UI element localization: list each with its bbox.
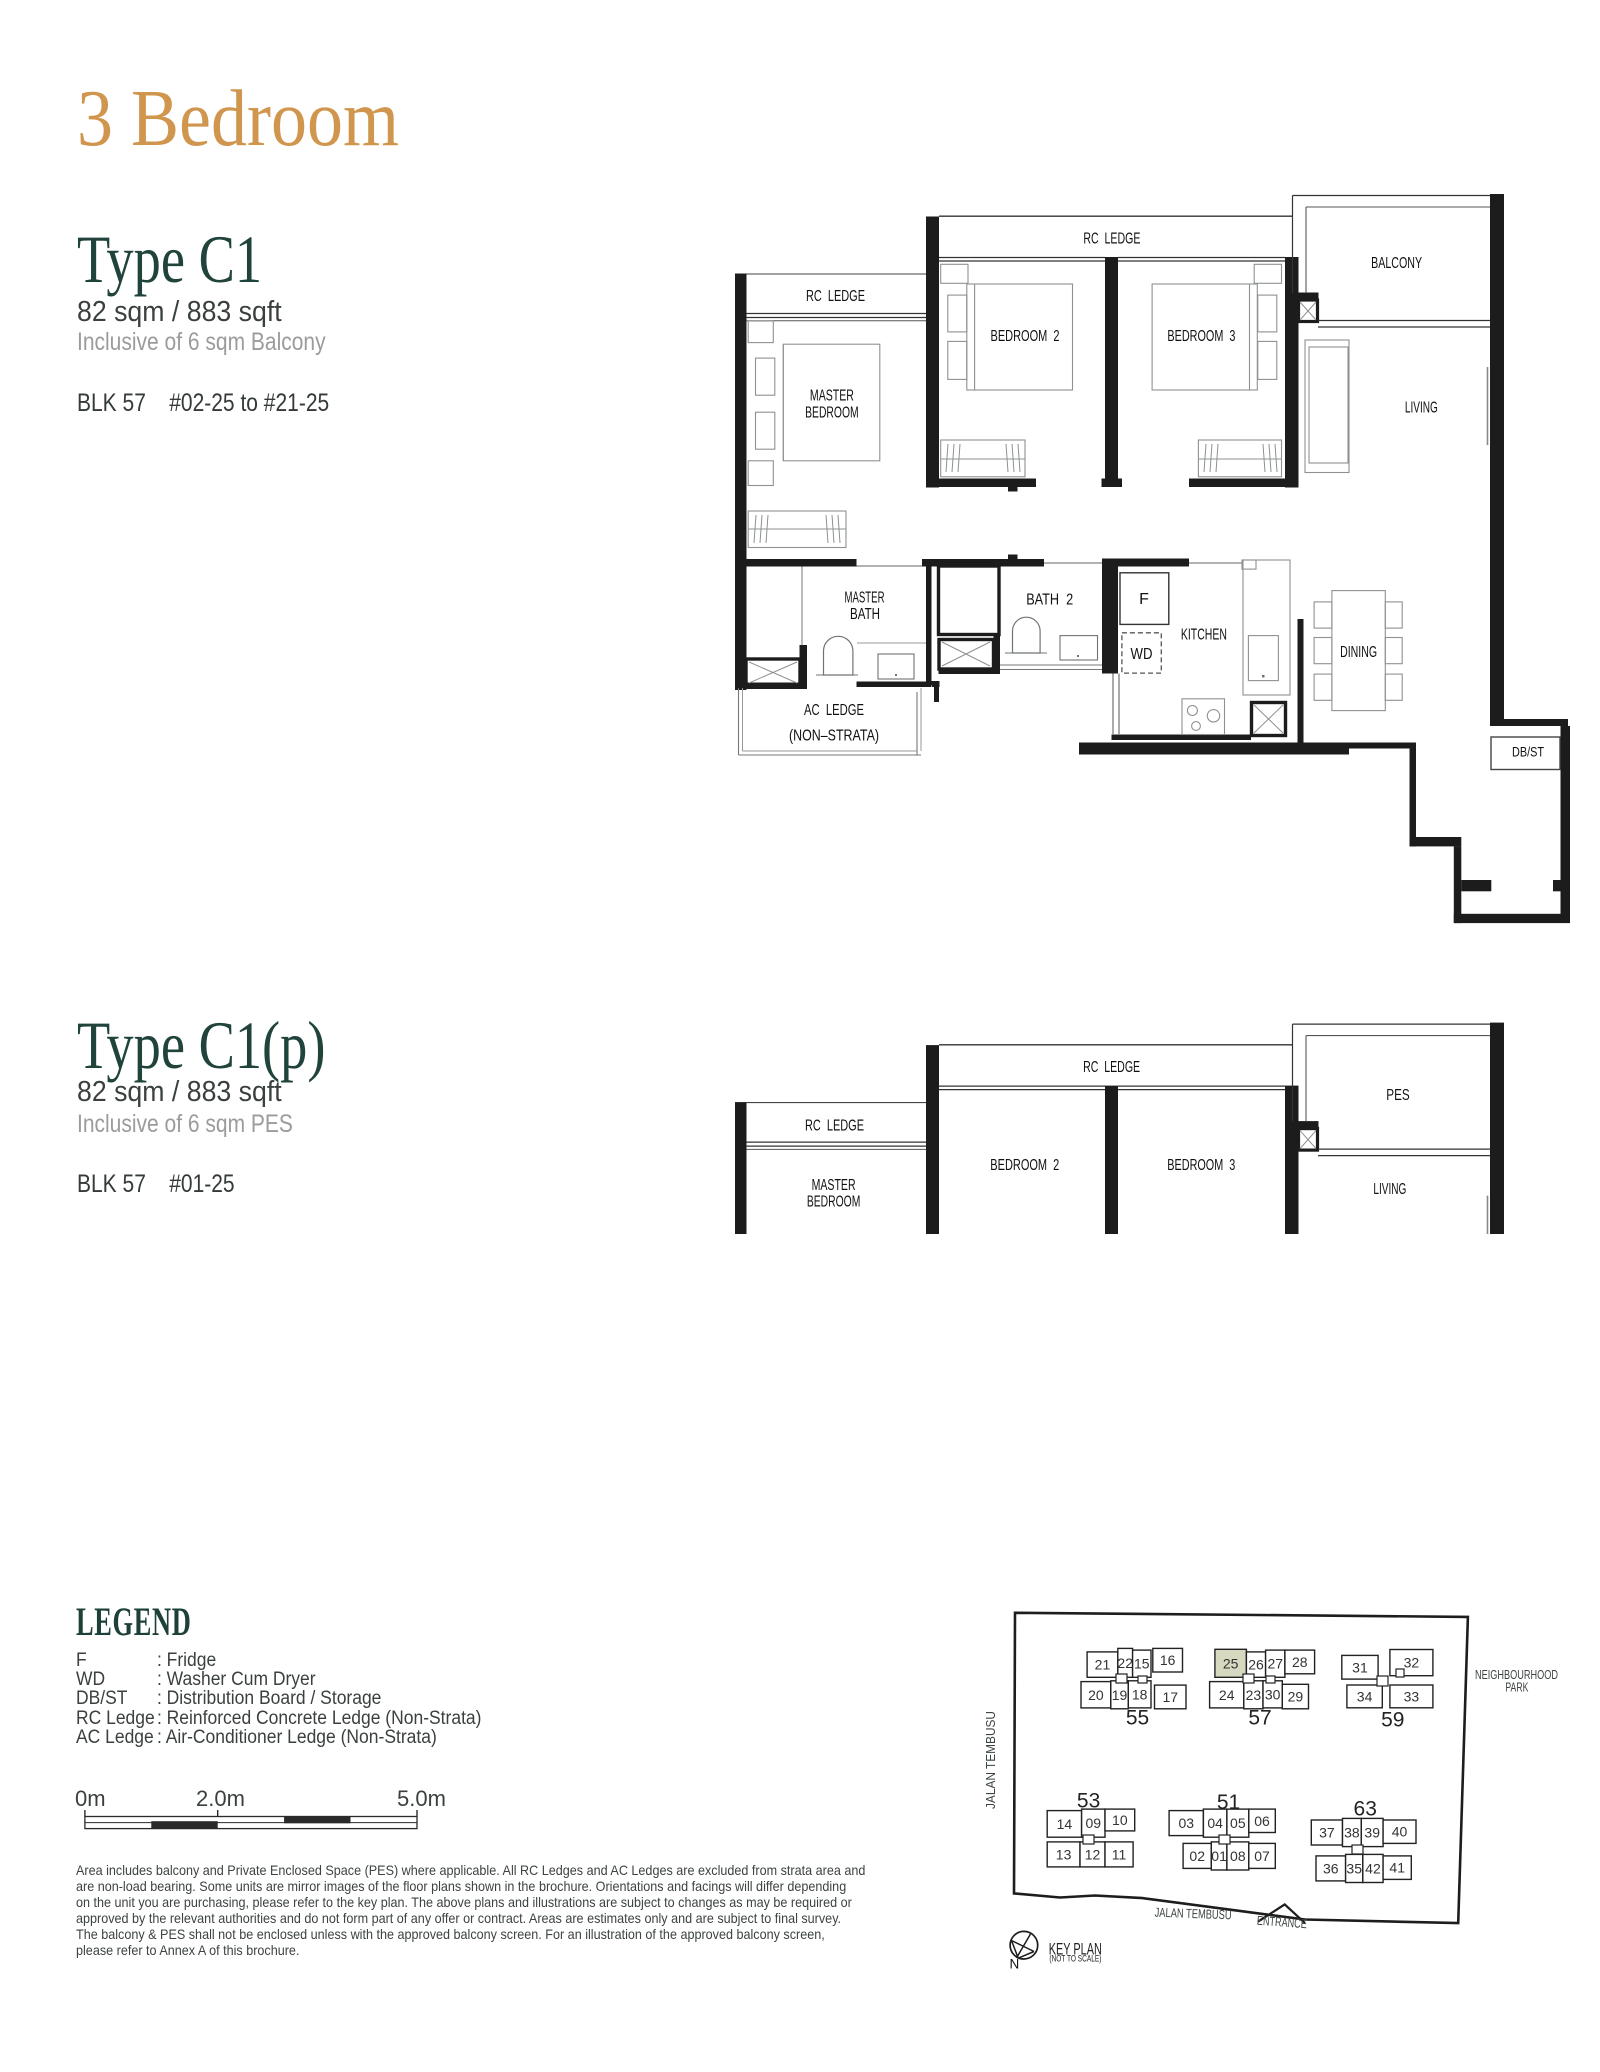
svg-text:MASTER: MASTER — [845, 590, 885, 607]
svg-text:JALAN TEMBUSU: JALAN TEMBUSU — [983, 1711, 998, 1809]
svg-text:18: 18 — [1132, 1686, 1148, 1702]
svg-text:42: 42 — [1365, 1860, 1381, 1876]
svg-text:BEDROOM: BEDROOM — [805, 404, 859, 421]
svg-text:24: 24 — [1219, 1687, 1235, 1703]
svg-text:02: 02 — [1189, 1848, 1205, 1864]
svg-text:RC LEDGE: RC LEDGE — [805, 1117, 864, 1134]
svg-text:BALCONY: BALCONY — [1371, 255, 1422, 272]
svg-text:06: 06 — [1254, 1813, 1270, 1829]
svg-text:20: 20 — [1088, 1687, 1104, 1703]
svg-text:BEDROOM: BEDROOM — [807, 1194, 861, 1211]
svg-text:40: 40 — [1392, 1824, 1408, 1840]
svg-text:(NON–STRATA): (NON–STRATA) — [789, 728, 879, 745]
svg-text:01: 01 — [1211, 1848, 1227, 1864]
svg-text:27: 27 — [1267, 1656, 1283, 1672]
svg-text:04: 04 — [1207, 1815, 1223, 1831]
svg-text:28: 28 — [1292, 1654, 1308, 1670]
svg-text:33: 33 — [1404, 1688, 1420, 1704]
svg-text:08: 08 — [1230, 1848, 1246, 1864]
svg-text:JALAN TEMBUSU: JALAN TEMBUSU — [1154, 1905, 1231, 1923]
svg-text:KITCHEN: KITCHEN — [1181, 626, 1227, 643]
svg-text:BATH: BATH — [850, 606, 880, 623]
svg-text:26: 26 — [1248, 1657, 1264, 1673]
svg-text:31: 31 — [1352, 1659, 1368, 1675]
svg-text:(NOT TO SCALE): (NOT TO SCALE) — [1049, 1954, 1101, 1965]
svg-text:12: 12 — [1085, 1846, 1101, 1862]
svg-text:35: 35 — [1346, 1860, 1362, 1876]
svg-text:BATH 2: BATH 2 — [1026, 592, 1073, 609]
svg-text:MASTER: MASTER — [810, 387, 854, 404]
svg-text:13: 13 — [1056, 1846, 1072, 1862]
svg-text:DB/ST: DB/ST — [1512, 744, 1544, 760]
svg-text:22: 22 — [1117, 1655, 1133, 1671]
svg-text:BEDROOM 2: BEDROOM 2 — [991, 328, 1060, 345]
svg-text:PARK: PARK — [1505, 1680, 1528, 1695]
svg-text:15: 15 — [1134, 1656, 1150, 1672]
svg-text:21: 21 — [1095, 1657, 1111, 1673]
svg-text:LIVING: LIVING — [1373, 1181, 1406, 1198]
svg-text:LIVING: LIVING — [1405, 399, 1438, 416]
svg-text:03: 03 — [1178, 1815, 1194, 1831]
svg-text:59: 59 — [1381, 1708, 1404, 1731]
svg-text:PES: PES — [1386, 1087, 1410, 1104]
svg-text:14: 14 — [1057, 1816, 1073, 1832]
svg-text:AC LEDGE: AC LEDGE — [804, 702, 864, 719]
svg-text:BEDROOM 2: BEDROOM 2 — [990, 1157, 1059, 1174]
svg-text:29: 29 — [1288, 1689, 1304, 1705]
svg-text:34: 34 — [1357, 1688, 1373, 1704]
svg-text:N: N — [1010, 1957, 1020, 1972]
svg-text:07: 07 — [1254, 1848, 1270, 1864]
svg-text:41: 41 — [1389, 1860, 1405, 1876]
svg-text:32: 32 — [1404, 1655, 1420, 1671]
svg-text:09: 09 — [1086, 1815, 1102, 1831]
svg-text:23: 23 — [1246, 1687, 1262, 1703]
svg-text:RC LEDGE: RC LEDGE — [1083, 230, 1140, 247]
svg-text:38: 38 — [1344, 1825, 1360, 1841]
svg-text:BEDROOM 3: BEDROOM 3 — [1167, 1157, 1235, 1174]
svg-text:WD: WD — [1131, 646, 1153, 663]
svg-text:19: 19 — [1112, 1687, 1128, 1703]
svg-text:RC LEDGE: RC LEDGE — [1083, 1059, 1140, 1076]
svg-text:39: 39 — [1364, 1825, 1380, 1841]
svg-text:16: 16 — [1160, 1652, 1176, 1668]
svg-text:05: 05 — [1230, 1815, 1246, 1831]
svg-text:25: 25 — [1223, 1655, 1239, 1671]
svg-text:10: 10 — [1112, 1812, 1128, 1828]
svg-text:37: 37 — [1319, 1825, 1335, 1841]
svg-text:F: F — [1139, 591, 1149, 608]
svg-text:MASTER: MASTER — [812, 1177, 856, 1194]
svg-text:BEDROOM 3: BEDROOM 3 — [1167, 328, 1235, 345]
svg-text:DINING: DINING — [1340, 644, 1377, 661]
svg-text:55: 55 — [1126, 1707, 1149, 1730]
svg-text:30: 30 — [1265, 1686, 1281, 1702]
svg-text:63: 63 — [1354, 1797, 1377, 1820]
svg-text:57: 57 — [1248, 1707, 1271, 1730]
svg-text:17: 17 — [1162, 1689, 1178, 1705]
svg-text:11: 11 — [1112, 1846, 1127, 1862]
svg-text:ENTRANCE: ENTRANCE — [1256, 1913, 1307, 1931]
svg-text:36: 36 — [1323, 1860, 1339, 1876]
svg-text:RC LEDGE: RC LEDGE — [806, 288, 865, 305]
